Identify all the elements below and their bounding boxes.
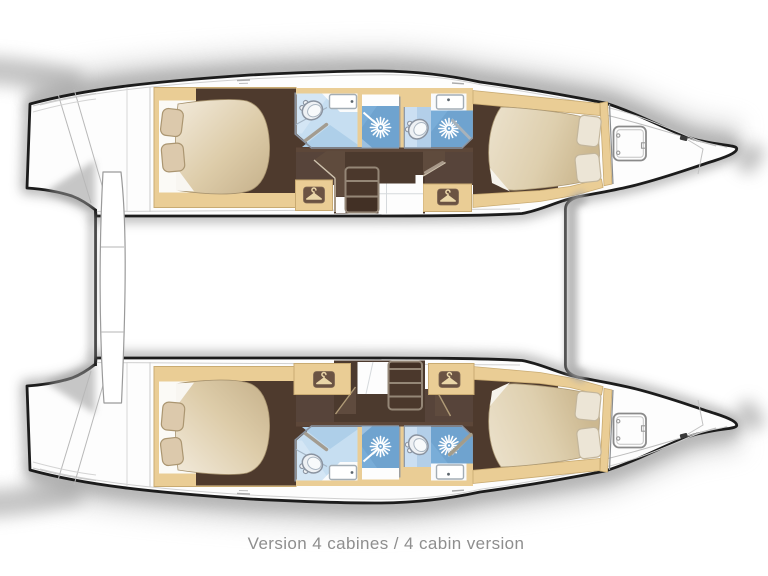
- svg-text:Version 4 cabines / 4 cabin ve: Version 4 cabines / 4 cabin version: [248, 534, 525, 553]
